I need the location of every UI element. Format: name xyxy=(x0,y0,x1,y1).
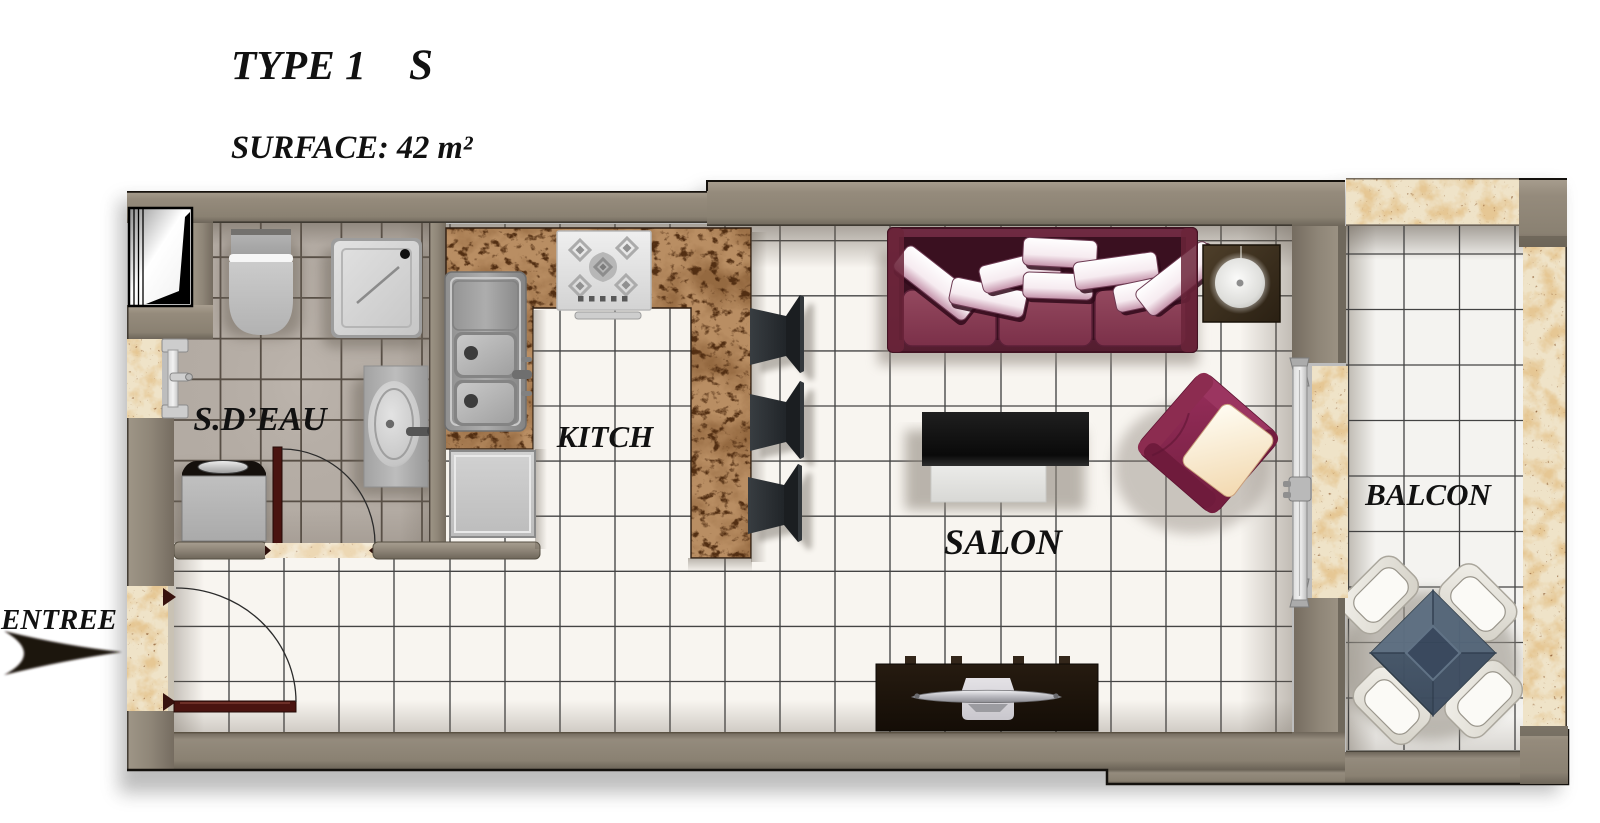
svg-text:S: S xyxy=(409,42,433,89)
svg-text:ENTREE: ENTREE xyxy=(0,604,117,636)
svg-text:SURFACE: 42 m²: SURFACE: 42 m² xyxy=(231,130,474,166)
svg-text:SALON: SALON xyxy=(944,522,1064,562)
svg-text:BALCON: BALCON xyxy=(1364,477,1492,512)
svg-text:S.D’EAU: S.D’EAU xyxy=(193,401,329,438)
svg-text:TYPE 1: TYPE 1 xyxy=(231,42,366,88)
svg-text:KITCH: KITCH xyxy=(556,419,654,454)
